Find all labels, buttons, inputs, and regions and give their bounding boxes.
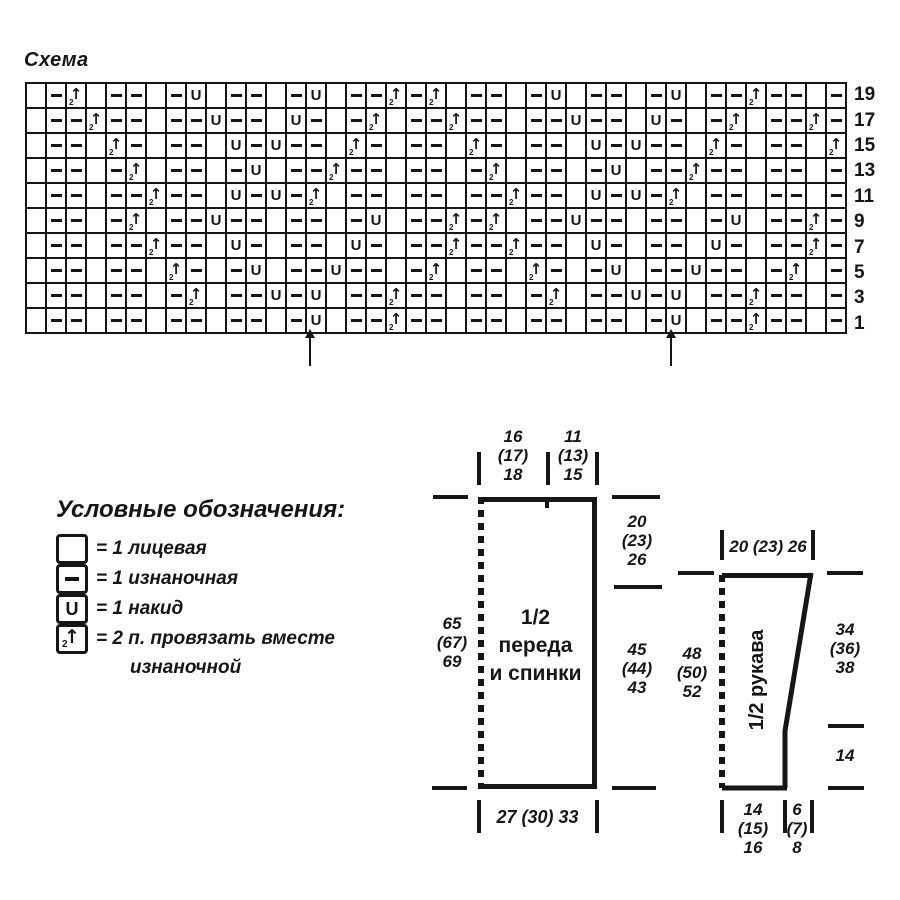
chart-row-numbers: 191715131197531 [854, 82, 894, 336]
chart-cell-purl [647, 159, 665, 182]
chart-cell-purl [67, 309, 85, 332]
chart-cell-purl [367, 309, 385, 332]
chart-cell-purl [647, 259, 665, 282]
chart-cell-purl [187, 134, 205, 157]
chart-cell-purl [727, 84, 745, 107]
sleeve-top-width: 20 (23) 26 [722, 537, 814, 556]
chart-cell-purl [647, 284, 665, 307]
chart-cell-purl [67, 134, 85, 157]
chart-cell-purl [307, 159, 325, 182]
chart-cell-knit [387, 159, 405, 182]
chart-cell-yo [647, 109, 665, 132]
sleeve-dash-bottom-right [828, 786, 864, 790]
chart-cell-purl [707, 84, 725, 107]
chart-cell-knit [327, 209, 345, 232]
chart-cell-purl [727, 134, 745, 157]
chart-cell-purl [707, 284, 725, 307]
chart-cell-p2tog [167, 259, 185, 282]
chart-cell-purl [547, 184, 565, 207]
chart-cell-knit [327, 309, 345, 332]
chart-cell-purl [367, 134, 385, 157]
chart-cell-purl [127, 84, 145, 107]
chart-cell-purl [347, 109, 365, 132]
chart-cell-knit [267, 309, 285, 332]
chart-cell-knit [447, 134, 465, 157]
chart-cell-knit [27, 184, 45, 207]
chart-cell-knit [207, 234, 225, 257]
chart-cell-purl [227, 259, 245, 282]
chart-cell-purl [647, 134, 665, 157]
chart-cell-knit [27, 309, 45, 332]
chart-cell-knit [687, 84, 705, 107]
chart-cell-knit [507, 284, 525, 307]
chart-cell-purl [187, 109, 205, 132]
chart-cell-p2tog [667, 184, 685, 207]
chart-cell-p2tog [747, 84, 765, 107]
chart-cell-purl [127, 284, 145, 307]
chart-cell-purl [787, 159, 805, 182]
chart-cell-p2tog [687, 159, 705, 182]
body-top-edge [478, 497, 597, 502]
chart-cell-purl [487, 134, 505, 157]
chart-cell-p2tog [107, 134, 125, 157]
chart-cell-knit [687, 309, 705, 332]
chart-cell-purl [727, 184, 745, 207]
chart-cell-knit [567, 159, 585, 182]
chart-cell-purl [587, 84, 605, 107]
sleeve-left-height: 48(50)52 [667, 644, 717, 701]
chart-cell-purl [407, 84, 425, 107]
chart-cell-purl [47, 309, 65, 332]
chart-cell-p2tog [787, 259, 805, 282]
chart-cell-yo [307, 84, 325, 107]
sleeve-dash-top-right [827, 571, 863, 575]
chart-cell-knit [87, 134, 105, 157]
chart-cell-purl [527, 84, 545, 107]
chart-cell-knit [207, 259, 225, 282]
chart-cell-purl [347, 84, 365, 107]
sleeve-name: 1/2 рукава [747, 620, 767, 740]
chart-cell-knit [327, 284, 345, 307]
chart-cell-purl [107, 159, 125, 182]
chart-cell-knit [627, 234, 645, 257]
chart-cell-p2tog [527, 259, 545, 282]
chart-cell-knit [627, 209, 645, 232]
chart-cell-purl [827, 309, 845, 332]
chart-row-number: 7 [854, 234, 894, 259]
chart-cell-p2tog [507, 234, 525, 257]
chart-cell-knit [627, 159, 645, 182]
chart-cell-knit [87, 259, 105, 282]
chart-cell-purl [407, 134, 425, 157]
chart-cell-purl [647, 209, 665, 232]
chart-cell-purl [767, 259, 785, 282]
chart-cell-purl [787, 284, 805, 307]
chart-cell-purl [187, 184, 205, 207]
legend-item-p2tog: = 2 п. провязать вместе [96, 629, 335, 648]
chart-cell-yo [347, 234, 365, 257]
chart-cell-purl [527, 184, 545, 207]
chart-cell-knit [207, 84, 225, 107]
chart-cell-knit [747, 209, 765, 232]
chart-cell-knit [87, 184, 105, 207]
chart-cell-yo [547, 84, 565, 107]
chart-cell-p2tog [147, 234, 165, 257]
chart-cell-purl [227, 109, 245, 132]
chart-cell-p2tog [87, 109, 105, 132]
chart-row-number: 11 [854, 184, 894, 209]
chart-cell-purl [167, 134, 185, 157]
chart-cell-purl [247, 109, 265, 132]
chart-cell-knit [687, 209, 705, 232]
chart-cell-yo [727, 209, 745, 232]
chart-cell-knit [267, 109, 285, 132]
chart-row-number: 5 [854, 260, 894, 285]
chart-cell-knit [687, 284, 705, 307]
chart-cell-purl [487, 309, 505, 332]
chart-cell-knit [747, 109, 765, 132]
chart-cell-purl [667, 134, 685, 157]
chart-cell-purl [347, 184, 365, 207]
purl-stitch-icon [56, 564, 88, 594]
sleeve-right-bottom-height: 14 [820, 746, 870, 765]
chart-cell-purl [427, 184, 445, 207]
chart-cell-knit [27, 134, 45, 157]
chart-cell-yo [567, 109, 585, 132]
chart-cell-purl [587, 209, 605, 232]
chart-cell-yo [267, 284, 285, 307]
chart-cell-purl [727, 284, 745, 307]
chart-cell-purl [667, 259, 685, 282]
chart-cell-purl [427, 234, 445, 257]
chart-cell-purl [727, 259, 745, 282]
chart-cell-purl [347, 159, 365, 182]
chart-cell-knit [267, 234, 285, 257]
chart-cell-knit [687, 234, 705, 257]
chart-cell-purl [307, 134, 325, 157]
chart-cell-purl [107, 184, 125, 207]
chart-cell-knit [447, 309, 465, 332]
chart-cell-purl [67, 259, 85, 282]
chart-cell-knit [507, 309, 525, 332]
chart-row-number: 9 [854, 209, 894, 234]
chart-cell-purl [527, 284, 545, 307]
chart-cell-knit [747, 184, 765, 207]
chart-cell-yo [667, 84, 685, 107]
chart-cell-purl [767, 159, 785, 182]
chart-cell-purl [787, 309, 805, 332]
chart-cell-purl [767, 209, 785, 232]
chart-cell-knit [747, 259, 765, 282]
body-tick [477, 452, 481, 485]
chart-cell-knit [207, 309, 225, 332]
chart-cell-p2tog [147, 184, 165, 207]
chart-cell-yo [627, 184, 645, 207]
chart-cell-purl [247, 184, 265, 207]
chart-cell-purl [527, 309, 545, 332]
chart-cell-p2tog [387, 309, 405, 332]
chart-row-number: 15 [854, 133, 894, 158]
chart-cell-purl [167, 234, 185, 257]
chart-cell-purl [827, 159, 845, 182]
legend-item-p2tog-line2: изнаночной [130, 658, 241, 677]
chart-cell-yo [227, 234, 245, 257]
chart-cell-knit [447, 184, 465, 207]
chart-cell-knit [387, 234, 405, 257]
chart-cell-knit [567, 184, 585, 207]
chart-cell-knit [507, 209, 525, 232]
chart-cell-purl [767, 134, 785, 157]
chart-cell-p2tog [307, 184, 325, 207]
chart-cell-purl [467, 109, 485, 132]
chart-cell-purl [827, 259, 845, 282]
chart-cell-purl [647, 309, 665, 332]
chart-cell-purl [787, 234, 805, 257]
chart-cell-p2tog [447, 234, 465, 257]
chart-cell-purl [307, 234, 325, 257]
chart-cell-knit [627, 109, 645, 132]
chart-cell-knit [267, 84, 285, 107]
chart-cell-knit [147, 109, 165, 132]
chart-cell-knit [147, 309, 165, 332]
chart-cell-purl [167, 309, 185, 332]
chart-cell-purl [127, 259, 145, 282]
chart-cell-purl [47, 209, 65, 232]
chart-cell-knit [87, 159, 105, 182]
chart-cell-purl [467, 209, 485, 232]
chart-cell-knit [627, 309, 645, 332]
chart-cell-purl [107, 309, 125, 332]
chart-cell-p2tog [707, 134, 725, 157]
chart-cell-purl [347, 284, 365, 307]
chart-cell-knit [687, 134, 705, 157]
chart-row-number: 17 [854, 107, 894, 132]
chart-cell-purl [367, 234, 385, 257]
chart-cell-purl [707, 259, 725, 282]
chart-cell-purl [167, 159, 185, 182]
chart-cell-yo [267, 184, 285, 207]
body-bottom-width: 27 (30) 33 [478, 808, 597, 827]
chart-cell-purl [227, 284, 245, 307]
chart-cell-knit [147, 209, 165, 232]
chart-cell-yo [287, 109, 305, 132]
chart-cell-p2tog [487, 209, 505, 232]
chart-cell-purl [187, 209, 205, 232]
legend-title: Условные обозначения: [56, 498, 345, 522]
chart-cell-knit [807, 259, 825, 282]
chart-cell-p2tog [327, 159, 345, 182]
chart-cell-purl [547, 134, 565, 157]
chart-cell-purl [707, 184, 725, 207]
chart-cell-p2tog [547, 284, 565, 307]
chart-cell-knit [567, 134, 585, 157]
chart-cell-knit [807, 309, 825, 332]
chart-cell-purl [227, 84, 245, 107]
chart-cell-knit [147, 284, 165, 307]
chart-cell-purl [787, 84, 805, 107]
chart-cell-purl [427, 159, 445, 182]
chart-cell-p2tog [747, 309, 765, 332]
chart-cell-purl [407, 284, 425, 307]
chart-cell-knit [207, 134, 225, 157]
chart-cell-knit [387, 134, 405, 157]
chart-cell-purl [287, 209, 305, 232]
chart-cell-knit [447, 284, 465, 307]
chart-cell-knit [507, 109, 525, 132]
chart-cell-knit [27, 209, 45, 232]
body-tick [546, 452, 550, 485]
chart-cell-purl [367, 184, 385, 207]
legend-item-knit: = 1 лицевая [96, 539, 207, 558]
chart-cell-purl [427, 309, 445, 332]
chart-cell-knit [327, 134, 345, 157]
chart-cell-purl [767, 234, 785, 257]
chart-cell-knit [567, 259, 585, 282]
chart-cell-purl [527, 159, 545, 182]
chart-cell-purl [47, 284, 65, 307]
legend-item-yo: = 1 накид [96, 599, 183, 618]
chart-cell-yo [207, 209, 225, 232]
chart-cell-purl [727, 234, 745, 257]
chart-cell-purl [487, 109, 505, 132]
chart-cell-p2tog [807, 209, 825, 232]
chart-cell-knit [567, 84, 585, 107]
chart-cell-purl [767, 109, 785, 132]
chart-cell-knit [687, 109, 705, 132]
chart-cell-purl [767, 84, 785, 107]
chart-cell-purl [167, 109, 185, 132]
chart-cell-purl [367, 84, 385, 107]
chart-cell-purl [767, 184, 785, 207]
chart-cell-knit [87, 284, 105, 307]
chart-cell-purl [667, 209, 685, 232]
chart-cell-purl [467, 159, 485, 182]
chart-cell-purl [47, 184, 65, 207]
chart-cell-knit [87, 209, 105, 232]
chart-cell-purl [187, 259, 205, 282]
chart-cell-knit [447, 84, 465, 107]
chart-cell-yo [707, 234, 725, 257]
chart-cell-purl [247, 209, 265, 232]
chart-cell-yo [247, 159, 265, 182]
chart-cell-purl [407, 209, 425, 232]
chart-cell-purl [607, 84, 625, 107]
chart-cell-purl [647, 234, 665, 257]
chart-cell-purl [587, 259, 605, 282]
chart-cell-knit [627, 84, 645, 107]
chart-cell-purl [367, 284, 385, 307]
chart-cell-purl [587, 309, 605, 332]
chart-cell-purl [767, 284, 785, 307]
chart-cell-p2tog [487, 159, 505, 182]
chart-cell-knit [387, 209, 405, 232]
yarn-over-icon [56, 594, 88, 624]
chart-cell-purl [67, 234, 85, 257]
chart-cell-purl [107, 84, 125, 107]
chart-cell-purl [67, 159, 85, 182]
chart-cell-purl [287, 259, 305, 282]
chart-cell-knit [147, 159, 165, 182]
chart-cell-purl [727, 309, 745, 332]
chart-cell-purl [827, 184, 845, 207]
chart-cell-purl [247, 134, 265, 157]
chart-cell-purl [107, 234, 125, 257]
body-name: 1/2 переда и спинки [478, 604, 593, 688]
chart-cell-purl [407, 259, 425, 282]
chart-cell-purl [107, 259, 125, 282]
chart-cell-purl [467, 259, 485, 282]
chart-cell-purl [647, 184, 665, 207]
chart-cell-purl [167, 84, 185, 107]
chart-cell-purl [47, 109, 65, 132]
chart-cell-purl [247, 234, 265, 257]
chart-cell-knit [807, 184, 825, 207]
chart-cell-p2tog [507, 184, 525, 207]
chart-cell-yo [227, 134, 245, 157]
chart-cell-knit [27, 284, 45, 307]
chart-cell-purl [827, 234, 845, 257]
chart-cell-yo [187, 84, 205, 107]
chart-cell-yo [327, 259, 345, 282]
chart-cell-yo [307, 284, 325, 307]
chart-cell-yo [587, 134, 605, 157]
chart-cell-purl [127, 134, 145, 157]
chart-cell-p2tog [387, 284, 405, 307]
chart-cell-p2tog [727, 109, 745, 132]
chart-cell-purl [827, 284, 845, 307]
chart-cell-knit [87, 84, 105, 107]
chart-cell-purl [407, 109, 425, 132]
chart-cell-purl [127, 184, 145, 207]
chart-cell-knit [27, 109, 45, 132]
chart-cell-knit [567, 284, 585, 307]
chart-cell-purl [767, 309, 785, 332]
chart-cell-purl [547, 209, 565, 232]
chart-cell-purl [547, 234, 565, 257]
chart-cell-yo [607, 159, 625, 182]
chart-cell-knit [807, 84, 825, 107]
chart-cell-purl [667, 234, 685, 257]
chart-cell-yo [587, 184, 605, 207]
chart-cell-knit [207, 284, 225, 307]
chart-cell-purl [587, 284, 605, 307]
chart-row-number: 13 [854, 158, 894, 183]
chart-cell-yo [267, 134, 285, 157]
sleeve-tick [720, 800, 724, 833]
body-dash-bottom-left [432, 786, 467, 790]
chart-cell-p2tog [807, 109, 825, 132]
chart-cell-knit [327, 234, 345, 257]
chart-cell-purl [47, 234, 65, 257]
chart-cell-purl [587, 109, 605, 132]
chart-cell-purl [287, 84, 305, 107]
chart-cell-knit [687, 184, 705, 207]
chart-cell-purl [827, 84, 845, 107]
body-left-height: 65(67)69 [427, 614, 477, 671]
chart-cell-purl [187, 309, 205, 332]
chart-cell-p2tog [427, 259, 445, 282]
chart-cell-purl [407, 309, 425, 332]
chart-cell-knit [507, 159, 525, 182]
chart-cell-purl [347, 209, 365, 232]
chart-cell-knit [747, 159, 765, 182]
chart-cell-purl [427, 109, 445, 132]
chart-cell-purl [67, 109, 85, 132]
chart-cell-purl [127, 234, 145, 257]
chart-cell-purl [347, 259, 365, 282]
body-dash-top-right [612, 495, 660, 499]
chart-cell-p2tog [347, 134, 365, 157]
